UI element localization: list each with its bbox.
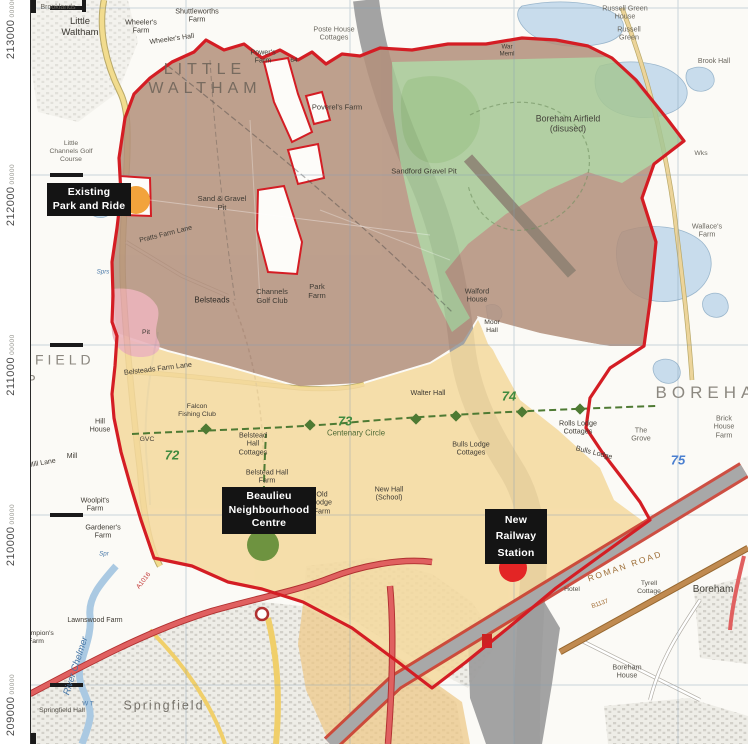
map-page: BrooklandsLittle WalthamWheeler's FarmSh…: [0, 0, 748, 744]
map-margin: 21300000000 21200000000 21100000000 2100…: [0, 0, 31, 744]
grid-label: 21100000000: [5, 319, 19, 411]
map-canvas: [0, 0, 748, 744]
grid-label: 21000000000: [5, 489, 19, 581]
park-and-ride-plot: [120, 176, 151, 216]
grid-label: 20900000000: [5, 659, 19, 744]
grid-label: 21300000000: [5, 0, 19, 74]
grid-label: 21200000000: [5, 149, 19, 241]
